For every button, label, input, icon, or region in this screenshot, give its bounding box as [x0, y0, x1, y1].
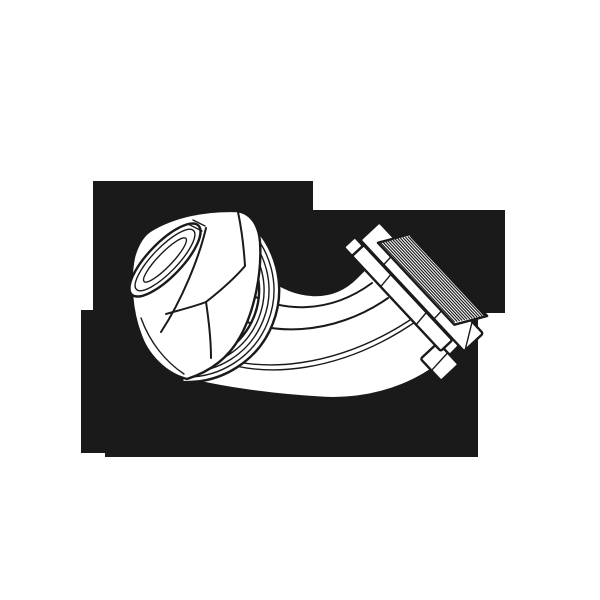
product-illustration [0, 0, 600, 600]
conduit-elbow-figure [0, 0, 600, 600]
